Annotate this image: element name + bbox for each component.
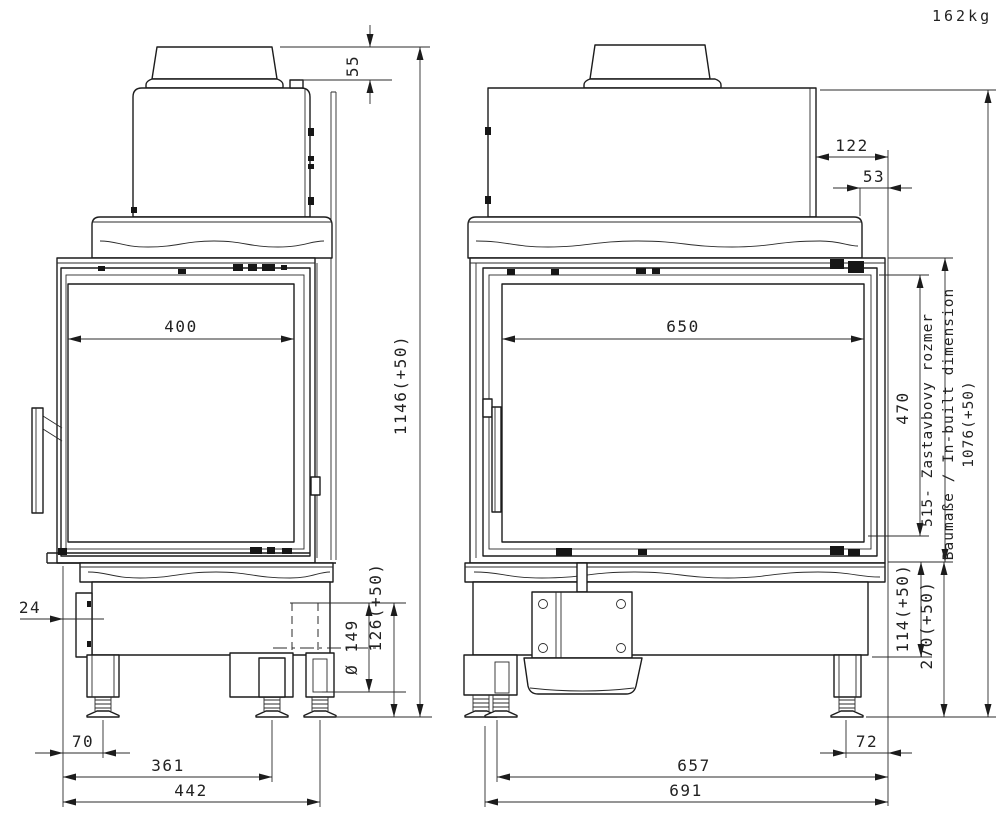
legs-left <box>87 653 336 717</box>
dim-1146-label: 1146(+50) <box>391 335 410 435</box>
dim-1076-label: 1076(+50) <box>961 380 977 468</box>
bracket-stem <box>577 563 587 592</box>
left-view <box>32 47 377 717</box>
dim-55-label: 55 <box>343 55 362 77</box>
convection-band-right <box>468 217 862 258</box>
bracket-plate <box>532 592 632 658</box>
dim-72-label: 72 <box>856 732 878 751</box>
weight-label: 162kg <box>932 7 992 25</box>
dim-24-label: 24 <box>19 598 41 617</box>
technical-drawing-sheet: 162kg 55 400 1146(+50) Ø 149 126(+50) 24… <box>0 0 999 827</box>
dim-70-label: 70 <box>72 732 94 751</box>
convection-band-left <box>92 217 332 258</box>
hinge-left <box>311 477 320 495</box>
firebox-left <box>47 258 336 563</box>
flue-collar-left <box>146 47 283 88</box>
leg <box>87 655 119 717</box>
dim-442-label: 442 <box>174 781 207 800</box>
fireplace-dimension-drawing: 162kg 55 400 1146(+50) Ø 149 126(+50) 24… <box>0 0 999 827</box>
note-inbuilt-sk-label: 515- Zastavbovy rozmer <box>920 313 936 527</box>
dim-691-label: 691 <box>669 781 702 800</box>
ash-tray <box>524 658 642 694</box>
note-inbuilt-de-en-label: Baumaße / In-built dimension <box>941 288 957 560</box>
base-right <box>464 563 885 695</box>
dim-657-label: 657 <box>677 756 710 775</box>
dim-270-label: 270(+50) <box>917 580 936 669</box>
leg <box>256 658 288 717</box>
dim-470-label: 470 <box>893 391 912 424</box>
dim-650-label: 650 <box>666 317 699 336</box>
firebox-right <box>470 258 885 563</box>
dim-53-label: 53 <box>863 167 885 186</box>
dim-114-label: 114(+50) <box>893 563 912 652</box>
leg <box>831 655 863 717</box>
flue-collar-right <box>584 45 721 88</box>
dim-126-label: 126(+50) <box>366 562 385 651</box>
heat-chamber-right <box>485 88 816 217</box>
dim-122-label: 122 <box>835 136 868 155</box>
leg <box>304 653 336 717</box>
dim-diameter-149-label: Ø 149 <box>342 619 361 675</box>
dim-400-label: 400 <box>164 317 197 336</box>
leg <box>485 695 517 717</box>
dim-361-label: 361 <box>151 756 184 775</box>
right-view <box>464 45 885 717</box>
